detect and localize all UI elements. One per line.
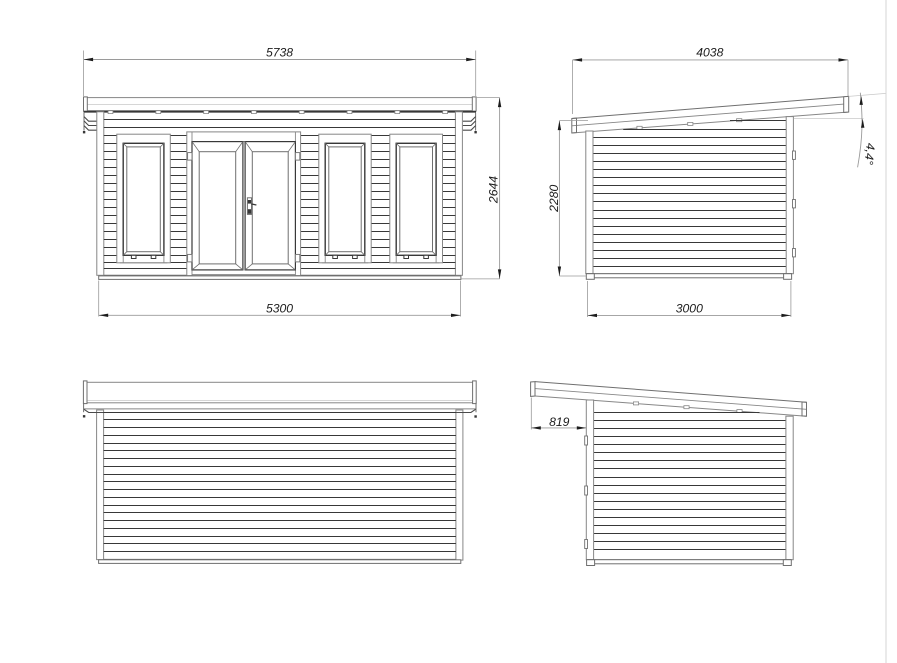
svg-text:4038: 4038 [696,46,723,60]
svg-text:819: 819 [549,415,570,429]
svg-text:2644: 2644 [486,176,500,204]
svg-text:5738: 5738 [266,45,293,59]
svg-text:3000: 3000 [676,302,703,316]
svg-text:4,4°: 4,4° [861,142,877,165]
svg-text:5300: 5300 [266,302,293,316]
svg-text:2280: 2280 [547,185,561,213]
